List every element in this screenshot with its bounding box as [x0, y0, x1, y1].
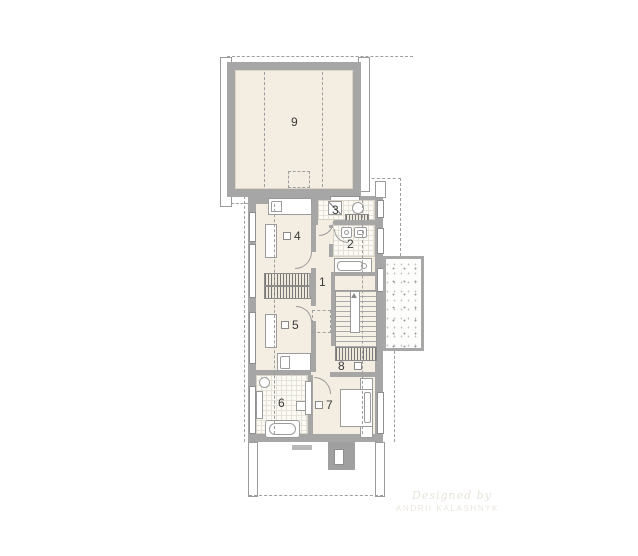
hall-dashed-marker [312, 310, 331, 333]
axis-dash-left [274, 204, 275, 434]
bathtub-room6 [265, 420, 300, 438]
window-left-1 [249, 212, 256, 242]
stairs-up-arrow-icon [351, 293, 357, 298]
room-label-8: 8 [338, 360, 362, 372]
room-label-5: 5 [281, 319, 299, 331]
room-number: 1 [319, 276, 326, 288]
sink-icon [259, 377, 270, 388]
sliding-door-panel [305, 381, 312, 415]
chimney-flue [334, 449, 344, 465]
overhang-dash-top [227, 56, 413, 57]
overhang-dash-left [244, 196, 245, 442]
pilaster-right-top [375, 181, 386, 198]
window-right-2 [377, 228, 384, 254]
furniture-square-icon [315, 401, 323, 409]
wall-room5-east-a [311, 297, 316, 306]
watermark-designed-by: Designed by [412, 489, 492, 502]
wall-below-bathtub [334, 272, 375, 276]
wardrobe-strip-bottom [264, 286, 311, 299]
garage-dash-line-1 [264, 72, 265, 187]
room-number: 9 [291, 116, 298, 128]
bidet-icon [354, 227, 367, 238]
terrace-wall-left [248, 442, 258, 497]
terrace-dash-edge [249, 495, 383, 496]
floor-plan: 1 2 3 4 5 6 7 8 9 Designed by ANDRII KAL… [0, 0, 638, 556]
room-label-6: 6 [278, 397, 285, 409]
watermark-designer-name: ANDRII KALASHNYK [396, 504, 499, 513]
wall-room4-east [311, 204, 316, 252]
room-label-1: 1 [319, 276, 326, 288]
balcony [383, 256, 424, 351]
room-number: 5 [292, 319, 299, 331]
room-label-4: 4 [283, 230, 301, 242]
room-label-2: 2 [347, 238, 354, 250]
desk-room5 [265, 314, 277, 348]
overhang-dash-right-top [400, 178, 401, 256]
terrace-step [292, 445, 312, 450]
terrace-wall-right [375, 442, 385, 497]
room-number: 2 [347, 238, 354, 250]
room-number: 7 [326, 399, 333, 411]
window-right-3 [377, 392, 384, 434]
window-right-1 [377, 200, 384, 218]
bed-room7 [340, 389, 373, 427]
garage-dash-line-2 [322, 72, 323, 187]
room-number: 4 [294, 230, 301, 242]
window-left-3 [249, 312, 256, 364]
window-left-4 [249, 386, 256, 434]
desk-room4 [265, 224, 277, 258]
garage-dashed-marker [288, 171, 310, 188]
towel-rail [256, 391, 263, 419]
window-left-2 [249, 244, 256, 298]
furniture-square-icon [283, 232, 291, 240]
overhang-dash-right-bottom [394, 351, 395, 442]
furniture-square-icon [281, 321, 289, 329]
room-label-7: 7 [315, 399, 333, 411]
wall-room2-west-a [329, 225, 333, 228]
room-number: 8 [338, 360, 345, 372]
room-label-3: 3 [332, 204, 339, 216]
wall-wardrobe-east [309, 273, 316, 297]
axis-dash-right [362, 200, 363, 434]
furniture-square-icon [354, 362, 362, 370]
room-number: 3 [332, 204, 339, 216]
wardrobe-strip-top [264, 273, 311, 286]
room-number: 6 [278, 397, 285, 409]
room-label-9: 9 [291, 116, 298, 128]
wall-room2-west-b [329, 244, 333, 257]
